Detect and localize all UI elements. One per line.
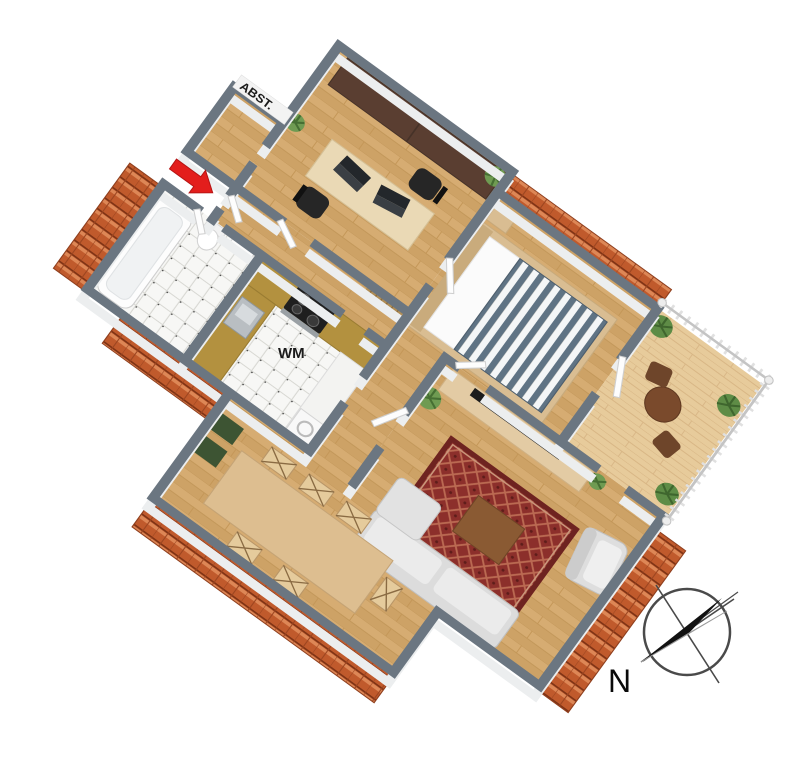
floor-plan-3d: ABST. WM N: [0, 0, 812, 768]
apartment-plan: ABST.: [0, 0, 806, 768]
compass-north-label: N: [608, 663, 631, 699]
floor-plan-canvas: ABST. WM N: [0, 0, 812, 768]
compass-needle-light: [641, 611, 727, 662]
bedroom-door-2: [456, 362, 486, 369]
bedroom-door: [446, 258, 453, 294]
washing-machine-label: WM: [278, 345, 305, 362]
compass-needle-dark: [641, 598, 722, 662]
